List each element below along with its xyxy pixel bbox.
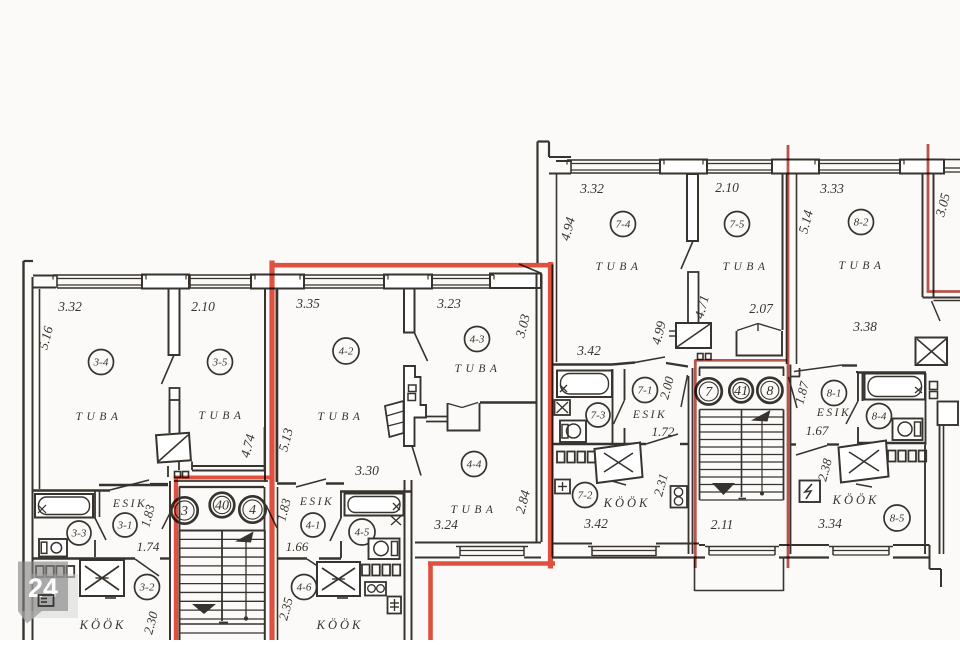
svg-text:40: 40 <box>215 499 229 514</box>
svg-text:KÖÖK: KÖÖK <box>79 617 127 632</box>
svg-text:2.10: 2.10 <box>191 299 215 314</box>
svg-text:3.23: 3.23 <box>436 296 461 311</box>
svg-text:TUBA: TUBA <box>596 261 643 273</box>
svg-text:7-2: 7-2 <box>578 490 593 502</box>
svg-text:8-1: 8-1 <box>827 388 842 400</box>
svg-text:ESIK: ESIK <box>299 496 334 508</box>
svg-text:7-3: 7-3 <box>591 410 606 422</box>
svg-text:4: 4 <box>249 503 256 518</box>
svg-text:TUBA: TUBA <box>318 411 365 423</box>
svg-text:41: 41 <box>734 384 748 399</box>
svg-text:ESIK: ESIK <box>632 409 667 421</box>
svg-text:7-5: 7-5 <box>730 219 745 231</box>
svg-text:3-1: 3-1 <box>117 520 133 532</box>
svg-text:4-5: 4-5 <box>355 527 370 539</box>
svg-text:4-2: 4-2 <box>339 346 354 358</box>
svg-text:TUBA: TUBA <box>723 261 770 273</box>
svg-text:TUBA: TUBA <box>839 260 886 272</box>
svg-text:3.35: 3.35 <box>295 296 320 311</box>
svg-text:8-2: 8-2 <box>854 217 869 229</box>
svg-text:1.66: 1.66 <box>286 539 309 554</box>
svg-text:3-2: 3-2 <box>139 582 155 594</box>
svg-text:ESIK: ESIK <box>816 407 851 419</box>
svg-text:3-5: 3-5 <box>212 357 228 369</box>
svg-text:3-4: 3-4 <box>93 357 109 369</box>
svg-text:1.74: 1.74 <box>137 539 160 554</box>
svg-text:3.32: 3.32 <box>57 299 82 314</box>
svg-text:KÖÖK: KÖÖK <box>832 492 880 507</box>
svg-text:8-4: 8-4 <box>872 411 887 423</box>
svg-text:3.38: 3.38 <box>852 319 877 334</box>
svg-text:TUBA: TUBA <box>199 410 246 422</box>
svg-text:7-4: 7-4 <box>616 219 631 231</box>
svg-text:4-1: 4-1 <box>306 520 321 532</box>
svg-text:3.33: 3.33 <box>819 181 844 196</box>
svg-text:TUBA: TUBA <box>451 504 498 516</box>
svg-text:3-3: 3-3 <box>71 528 87 540</box>
svg-text:3.30: 3.30 <box>354 463 379 478</box>
svg-text:TUBA: TUBA <box>76 411 123 423</box>
svg-text:1.67: 1.67 <box>806 423 829 438</box>
svg-text:7-1: 7-1 <box>638 385 653 397</box>
svg-text:4-4: 4-4 <box>467 459 482 471</box>
svg-text:2.10: 2.10 <box>715 180 739 195</box>
svg-text:3.32: 3.32 <box>579 181 604 196</box>
svg-text:KÖÖK: KÖÖK <box>316 617 364 632</box>
svg-text:4-6: 4-6 <box>297 582 312 594</box>
svg-text:3.24: 3.24 <box>433 517 458 532</box>
svg-text:7: 7 <box>705 385 713 400</box>
svg-text:3.34: 3.34 <box>817 516 842 531</box>
svg-text:TUBA: TUBA <box>455 363 502 375</box>
svg-text:KÖÖK: KÖÖK <box>603 495 651 510</box>
svg-text:3.42: 3.42 <box>583 516 608 531</box>
svg-text:8: 8 <box>766 384 773 399</box>
svg-text:2.11: 2.11 <box>711 517 734 532</box>
svg-text:2.07: 2.07 <box>749 301 774 316</box>
svg-text:4-3: 4-3 <box>470 334 485 346</box>
svg-text:3: 3 <box>180 504 188 519</box>
svg-text:3.42: 3.42 <box>576 343 601 358</box>
svg-text:8-5: 8-5 <box>890 513 905 525</box>
